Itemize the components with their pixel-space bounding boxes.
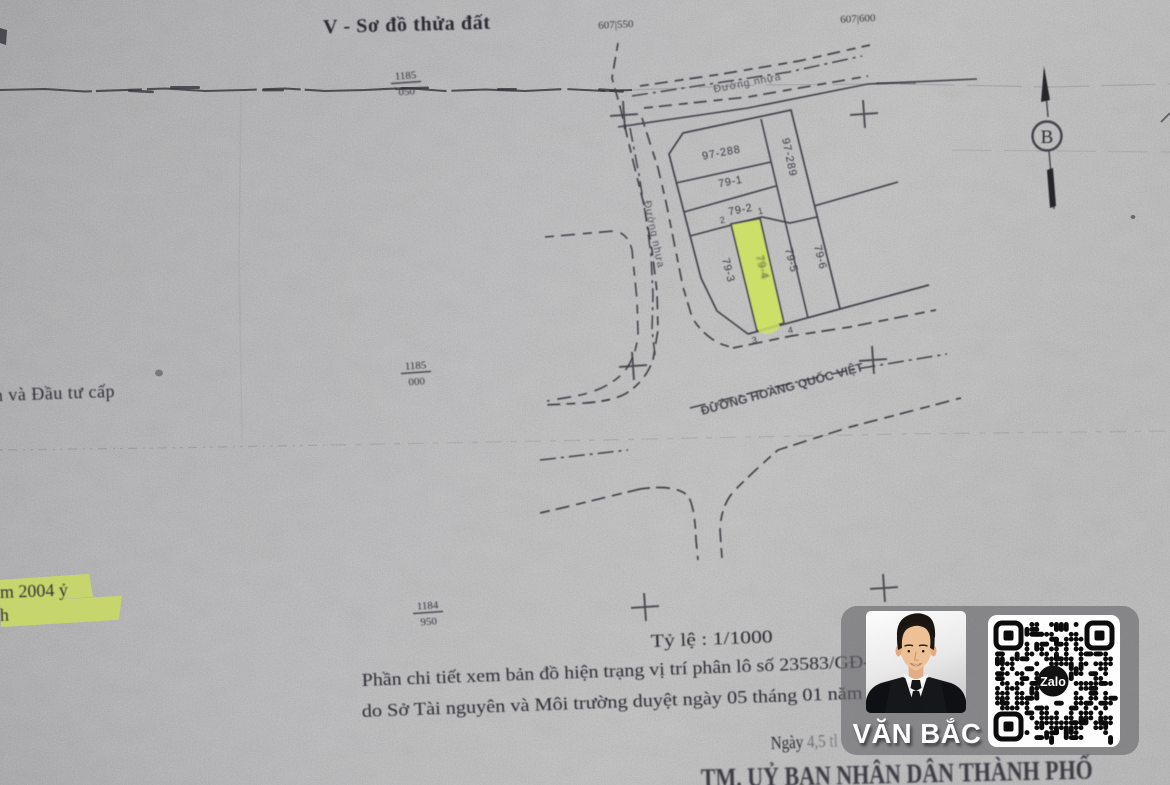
svg-text:h: h <box>0 605 9 625</box>
svg-text:050: 050 <box>398 85 416 98</box>
svg-text:607|600: 607|600 <box>840 12 876 26</box>
svg-text:VĂN BẮC: VĂN BẮC <box>853 718 982 749</box>
svg-text:B: B <box>1041 127 1054 148</box>
svg-text:h và Đầu tư cấp: h và Đầu tư cấp <box>0 381 115 405</box>
svg-text:Ngày 4,5 tl: Ngày 4,5 tl <box>770 731 838 753</box>
svg-text:1185: 1185 <box>404 359 427 373</box>
svg-text:607|550: 607|550 <box>598 18 634 32</box>
svg-text:1185: 1185 <box>394 69 417 83</box>
svg-text:Zalo: Zalo <box>1040 675 1066 689</box>
svg-text:V - Sơ đồ thửa đất: V - Sơ đồ thửa đất <box>323 12 491 38</box>
svg-text:ăm 2004 ỷ: ăm 2004 ỷ <box>0 580 68 603</box>
svg-text:000: 000 <box>408 375 426 388</box>
svg-text:950: 950 <box>420 615 438 628</box>
svg-text:1184: 1184 <box>416 599 439 613</box>
